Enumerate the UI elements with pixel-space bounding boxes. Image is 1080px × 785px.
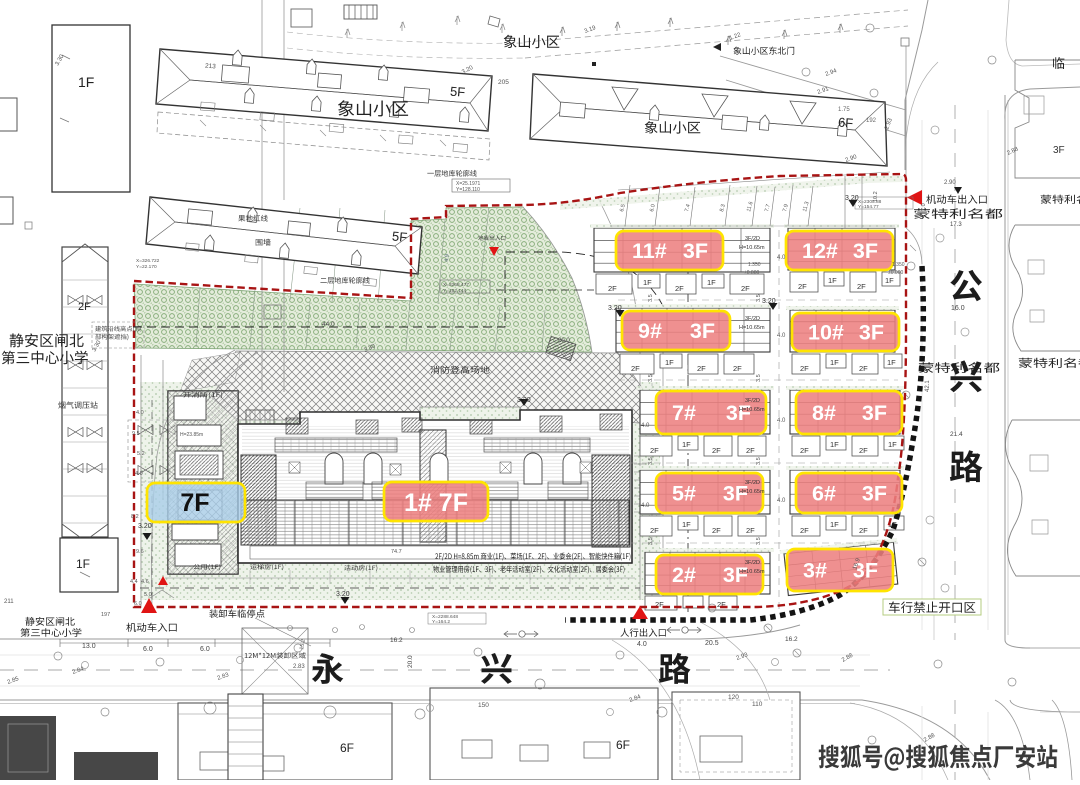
svg-text:3.5: 3.5 — [756, 457, 762, 465]
svg-text:H=10.65m: H=10.65m — [739, 245, 765, 251]
svg-text:2F: 2F — [800, 446, 809, 455]
svg-text:3F: 3F — [690, 319, 715, 343]
svg-text:3F: 3F — [683, 239, 708, 263]
svg-text:4.6: 4.6 — [141, 579, 149, 585]
svg-text:7.0: 7.0 — [921, 203, 927, 211]
svg-text:Y=128.110: Y=128.110 — [456, 187, 480, 193]
svg-text:21.4: 21.4 — [950, 431, 963, 438]
svg-text:2F: 2F — [746, 446, 755, 455]
svg-text:6F: 6F — [616, 738, 630, 752]
svg-text:3.20: 3.20 — [845, 195, 859, 202]
svg-text:16.0: 16.0 — [951, 305, 965, 312]
svg-text:3F: 3F — [862, 482, 887, 506]
svg-text:3.5: 3.5 — [756, 537, 762, 545]
svg-text:2F: 2F — [800, 526, 809, 535]
svg-text:3.20: 3.20 — [138, 523, 152, 530]
svg-text:2F: 2F — [650, 526, 659, 535]
svg-text:5.2: 5.2 — [137, 451, 145, 457]
svg-text:2F: 2F — [859, 526, 868, 535]
svg-text:2F: 2F — [733, 364, 742, 373]
svg-text:4.0: 4.0 — [637, 641, 647, 648]
svg-text:3.20: 3.20 — [517, 397, 531, 404]
svg-text:13.0: 13.0 — [82, 643, 96, 650]
svg-text:2.83: 2.83 — [293, 664, 305, 670]
svg-text:±0.000: ±0.000 — [744, 270, 759, 276]
svg-text:1F: 1F — [78, 74, 94, 90]
svg-text:1F: 1F — [888, 440, 897, 449]
svg-text:H=23.85m: H=23.85m — [180, 432, 203, 438]
svg-text:2F: 2F — [800, 364, 809, 373]
svg-text:2F: 2F — [741, 284, 750, 293]
svg-text:9.6: 9.6 — [136, 549, 144, 555]
svg-text:X=3268.477: X=3268.477 — [443, 282, 469, 288]
svg-text:1F: 1F — [707, 278, 716, 287]
svg-text:6F: 6F — [340, 741, 354, 755]
svg-text:1.350: 1.350 — [748, 262, 761, 268]
svg-text:4.0: 4.0 — [777, 255, 786, 261]
svg-text:3F/2D: 3F/2D — [745, 480, 760, 486]
svg-text:3F/2D: 3F/2D — [745, 236, 760, 242]
svg-text:213: 213 — [205, 63, 217, 71]
svg-text:1.75: 1.75 — [838, 107, 850, 113]
svg-text:3F/2D: 3F/2D — [745, 560, 760, 566]
svg-text:197: 197 — [101, 612, 110, 618]
svg-text:1F: 1F — [830, 358, 839, 367]
svg-text:1F: 1F — [885, 276, 894, 285]
svg-text:205: 205 — [498, 79, 509, 86]
svg-text:1F: 1F — [665, 358, 674, 367]
svg-text:9#: 9# — [638, 319, 662, 343]
svg-text:1F: 1F — [828, 276, 837, 285]
svg-text:4.0: 4.0 — [641, 423, 650, 429]
svg-text:20.0: 20.0 — [407, 655, 414, 668]
svg-text:2F: 2F — [675, 284, 684, 293]
svg-text:5#: 5# — [672, 482, 696, 506]
svg-text:42.1: 42.1 — [925, 380, 931, 392]
svg-text:Y=22.170: Y=22.170 — [136, 264, 157, 270]
svg-text:3.5: 3.5 — [756, 294, 762, 302]
svg-text:3.5: 3.5 — [648, 294, 654, 302]
svg-text:2.90: 2.90 — [944, 180, 956, 186]
svg-text:20.5: 20.5 — [705, 640, 719, 647]
svg-text:3.5: 3.5 — [648, 537, 654, 545]
svg-text:2F: 2F — [712, 446, 721, 455]
svg-text:5F: 5F — [391, 228, 408, 244]
svg-text:8.2: 8.2 — [131, 514, 139, 520]
svg-text:Y=154.77: Y=154.77 — [858, 204, 879, 210]
svg-text:3.20: 3.20 — [762, 298, 776, 305]
svg-text:44.0: 44.0 — [322, 321, 335, 328]
svg-text:120: 120 — [728, 694, 739, 701]
svg-text:2F: 2F — [857, 282, 866, 291]
svg-text:10.2: 10.2 — [873, 191, 879, 202]
svg-text:Y=164.2: Y=164.2 — [432, 619, 450, 625]
svg-text:2#: 2# — [672, 563, 696, 587]
svg-text:192: 192 — [866, 118, 877, 124]
svg-text:6#: 6# — [812, 482, 836, 506]
svg-text:3F: 3F — [1053, 145, 1065, 156]
svg-text:1F: 1F — [682, 520, 691, 529]
svg-text:4.0: 4.0 — [641, 503, 650, 509]
svg-text:1F: 1F — [887, 358, 896, 367]
svg-text:7#: 7# — [672, 401, 696, 425]
svg-text:2F: 2F — [859, 446, 868, 455]
svg-text:3.20: 3.20 — [336, 591, 350, 598]
svg-text:2F: 2F — [697, 364, 706, 373]
svg-text:H=10.65m: H=10.65m — [739, 407, 765, 413]
svg-text:8#: 8# — [812, 401, 836, 425]
svg-text:3F/2D: 3F/2D — [745, 316, 760, 322]
svg-text:3F/2D: 3F/2D — [745, 398, 760, 404]
svg-text:10#: 10# — [808, 321, 844, 345]
svg-text:2F: 2F — [650, 446, 659, 455]
svg-text:1F: 1F — [76, 557, 90, 571]
svg-text:3F: 3F — [723, 563, 748, 587]
svg-text:12#: 12# — [802, 239, 838, 263]
svg-text:3.5: 3.5 — [756, 374, 762, 382]
svg-text:5.0: 5.0 — [144, 592, 152, 598]
svg-text:9.5: 9.5 — [132, 431, 140, 437]
svg-text:1F: 1F — [830, 440, 839, 449]
svg-text:1F: 1F — [830, 520, 839, 529]
svg-text:7F: 7F — [180, 489, 209, 517]
svg-text:6F: 6F — [837, 115, 853, 131]
svg-text:3.20: 3.20 — [608, 305, 622, 312]
svg-text:11#: 11# — [632, 239, 667, 263]
svg-text:16.2: 16.2 — [785, 636, 798, 643]
svg-text:4.0: 4.0 — [777, 333, 786, 339]
svg-text:6.0: 6.0 — [134, 601, 142, 607]
svg-text:Y=162.144: Y=162.144 — [443, 288, 467, 294]
svg-text:1# 7F: 1# 7F — [404, 489, 468, 517]
svg-text:3F: 3F — [862, 401, 887, 425]
svg-text:2F: 2F — [78, 301, 91, 313]
svg-text:20.0: 20.0 — [558, 338, 570, 344]
svg-text:3F: 3F — [859, 321, 884, 345]
svg-text:4.0: 4.0 — [777, 498, 786, 504]
svg-text:3F: 3F — [726, 401, 751, 425]
svg-text:H=10.65m: H=10.65m — [739, 569, 765, 575]
svg-text:1F: 1F — [643, 278, 652, 287]
svg-text:2F: 2F — [859, 364, 868, 373]
svg-text:2F: 2F — [608, 284, 617, 293]
svg-text:3.5: 3.5 — [648, 374, 654, 382]
svg-text:74.7: 74.7 — [391, 549, 402, 555]
svg-text:X=326.722: X=326.722 — [136, 258, 160, 264]
svg-text:211: 211 — [4, 599, 14, 605]
svg-text:2F: 2F — [746, 526, 755, 535]
svg-text:6.0: 6.0 — [200, 646, 210, 653]
svg-text:2F: 2F — [712, 526, 721, 535]
svg-text:4.0: 4.0 — [777, 418, 786, 424]
svg-text:±0.000: ±0.000 — [888, 270, 903, 276]
svg-text:2F: 2F — [631, 364, 640, 373]
svg-text:H=10.65m: H=10.65m — [739, 325, 765, 331]
svg-text:4.0: 4.0 — [135, 471, 143, 477]
svg-text:4.0: 4.0 — [136, 410, 144, 416]
svg-text:1.350: 1.350 — [892, 262, 905, 268]
svg-text:3.5: 3.5 — [648, 457, 654, 465]
svg-text:6.0: 6.0 — [143, 646, 153, 653]
svg-text:2F: 2F — [798, 282, 807, 291]
svg-text:150: 150 — [478, 702, 489, 709]
svg-text:3F: 3F — [853, 239, 878, 263]
svg-text:4.9: 4.9 — [444, 254, 451, 262]
svg-text:17.3: 17.3 — [950, 222, 962, 228]
svg-text:3#: 3# — [803, 559, 827, 583]
svg-text:1F: 1F — [682, 440, 691, 449]
svg-text:16.2: 16.2 — [390, 637, 403, 644]
svg-text:5F: 5F — [449, 84, 465, 100]
svg-text:110: 110 — [752, 701, 763, 708]
svg-text:H=10.65m: H=10.65m — [739, 489, 765, 495]
svg-text:4.4: 4.4 — [130, 579, 138, 585]
